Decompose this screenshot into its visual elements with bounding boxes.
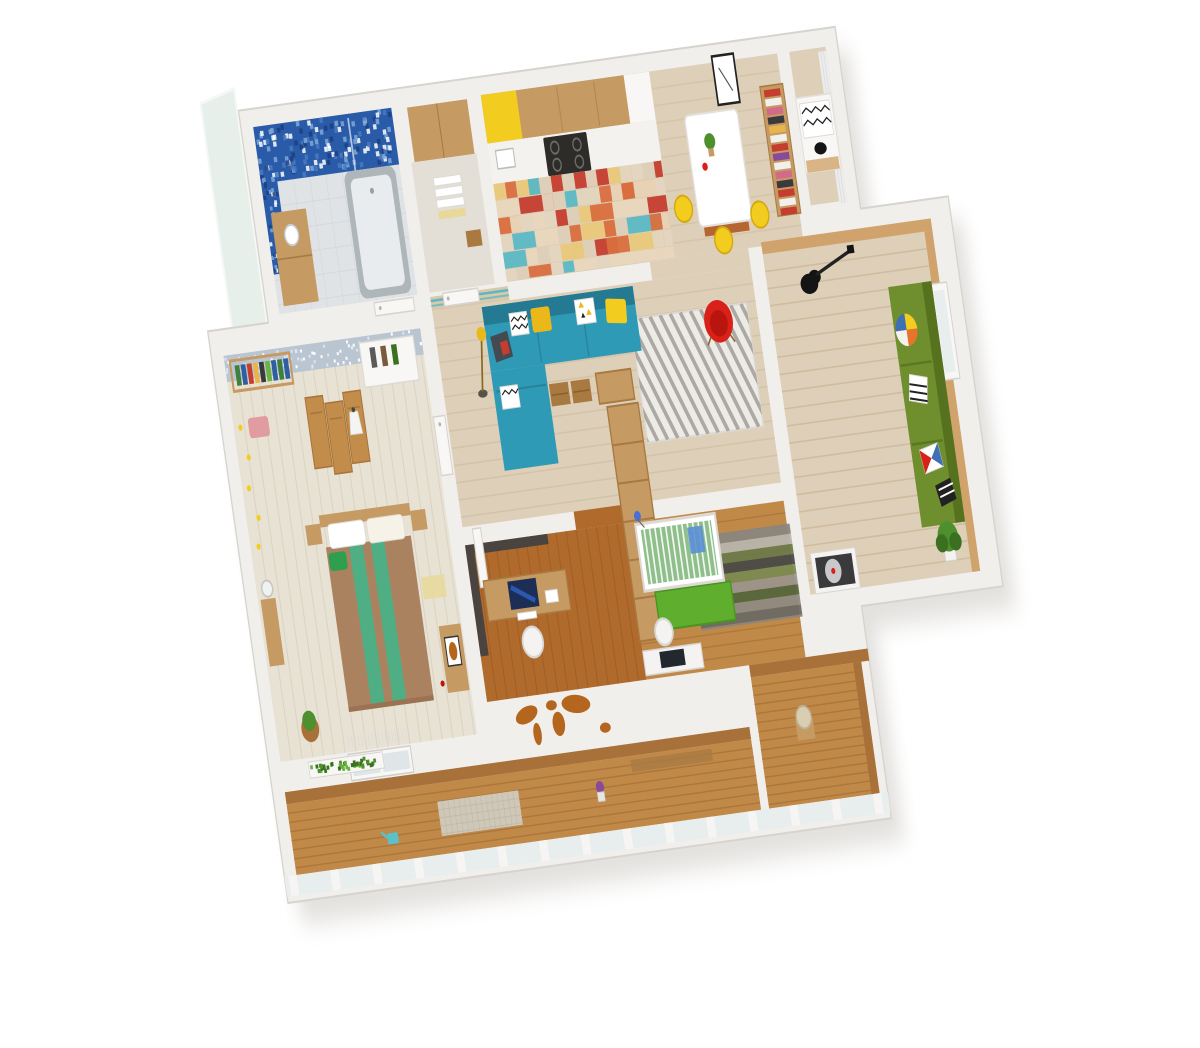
- texture-speckle: [334, 151, 338, 157]
- coffee-table: [595, 369, 634, 404]
- texture-speckle: [313, 360, 315, 363]
- guitar-head: [847, 245, 855, 254]
- texture-speckle: [295, 350, 297, 353]
- texture-speckle: [329, 136, 333, 142]
- texture-speckle: [264, 184, 267, 188]
- texture-patch: [610, 184, 623, 202]
- texture-speckle: [286, 160, 290, 166]
- texture-speckle: [362, 120, 366, 126]
- texture-speckle: [224, 358, 226, 361]
- texture-speckle: [366, 760, 369, 764]
- texture-speckle: [362, 757, 365, 761]
- pillow-zigzag: [500, 385, 521, 410]
- texture-speckle: [314, 139, 318, 145]
- texture-speckle: [271, 135, 275, 141]
- texture-speckle: [306, 166, 310, 172]
- texture-speckle: [356, 146, 360, 152]
- pillow-zigzag: [509, 311, 530, 336]
- texture-speckle: [277, 127, 281, 133]
- texture-speckle: [303, 357, 305, 360]
- texture-patch: [572, 242, 585, 260]
- texture-speckle: [339, 350, 341, 353]
- texture-speckle: [351, 121, 355, 127]
- texture-speckle: [226, 368, 228, 371]
- texture-speckle: [299, 128, 303, 134]
- texture-speckle: [337, 127, 341, 133]
- texture-speckle: [273, 157, 277, 163]
- texture-patch: [604, 220, 617, 238]
- texture-speckle: [309, 131, 313, 137]
- bed-pillow: [327, 520, 367, 549]
- texture-speckle: [296, 121, 300, 127]
- texture-speckle: [320, 764, 323, 768]
- texture-patch: [503, 250, 527, 269]
- texture-patch: [606, 235, 630, 254]
- floorplan-svg: [0, 0, 1200, 1048]
- texture-speckle: [375, 119, 379, 125]
- texture-speckle: [269, 165, 273, 171]
- texture-patch: [585, 170, 598, 188]
- texture-speckle: [367, 142, 371, 148]
- texture-speckle: [356, 761, 359, 765]
- texture-speckle: [351, 346, 353, 349]
- texture-speckle: [338, 163, 342, 169]
- texture-speckle: [310, 141, 314, 147]
- texture-speckle: [289, 146, 293, 152]
- apartment-model: [175, 0, 1033, 903]
- texture-speckle: [369, 763, 372, 767]
- texture-speckle: [269, 225, 272, 229]
- texture-speckle: [272, 173, 275, 177]
- kitchen-yellow-cabinet: [481, 90, 523, 143]
- texture-speckle: [282, 162, 286, 168]
- texture-speckle: [323, 345, 325, 348]
- texture-speckle: [358, 358, 360, 361]
- texture-patch: [532, 212, 545, 230]
- texture-speckle: [388, 112, 392, 118]
- texture-speckle: [266, 191, 269, 195]
- texture-speckle: [366, 128, 370, 134]
- texture-speckle: [330, 123, 334, 129]
- texture-speckle: [358, 131, 362, 137]
- closet: [359, 335, 419, 387]
- texture-speckle: [347, 147, 351, 153]
- texture-speckle: [289, 133, 293, 139]
- table-plant-pot: [708, 148, 715, 157]
- texture-patch: [569, 224, 582, 242]
- papers: [545, 589, 559, 603]
- texture-speckle: [375, 112, 379, 118]
- texture-patch: [647, 195, 668, 214]
- texture-speckle: [386, 137, 390, 143]
- balcony-door-glass: [381, 750, 410, 772]
- side-table: [410, 509, 428, 531]
- texture-patch: [563, 260, 575, 273]
- texture-speckle: [377, 139, 381, 145]
- texture-speckle: [344, 157, 348, 163]
- texture-speckle: [377, 160, 381, 166]
- pink-seat: [247, 416, 270, 439]
- texture-speckle: [284, 356, 286, 359]
- texture-speckle: [344, 761, 347, 765]
- texture-speckle: [373, 124, 377, 130]
- texture-speckle: [308, 355, 310, 358]
- texture-speckle: [311, 351, 313, 354]
- texture-patch: [505, 268, 517, 281]
- texture-speckle: [382, 110, 386, 116]
- texture-speckle: [274, 265, 277, 269]
- texture-speckle: [327, 160, 331, 166]
- texture-speckle: [259, 142, 263, 148]
- texture-patch: [493, 183, 506, 201]
- texture-speckle: [359, 162, 363, 168]
- texture-speckle: [382, 154, 386, 160]
- pillow-triangles: [574, 298, 596, 325]
- texture-speckle: [280, 124, 284, 130]
- texture-speckle: [342, 767, 345, 771]
- texture-speckle: [290, 350, 292, 353]
- texture-speckle: [260, 131, 264, 137]
- texture-speckle: [340, 121, 344, 127]
- texture-speckle: [313, 352, 315, 355]
- texture-speckle: [337, 362, 339, 365]
- texture-patch: [546, 228, 559, 246]
- texture-speckle: [327, 353, 329, 356]
- texture-speckle: [408, 330, 410, 333]
- render-stage: [0, 0, 1200, 1048]
- texture-patch: [512, 231, 536, 250]
- texture-speckle: [271, 188, 274, 192]
- texture-speckle: [310, 765, 313, 769]
- texture-speckle: [345, 357, 347, 360]
- texture-speckle: [315, 764, 318, 768]
- texture-speckle: [317, 769, 320, 773]
- texture-speckle: [316, 143, 320, 149]
- texture-patch: [505, 181, 518, 199]
- texture-speckle: [303, 159, 307, 165]
- texture-speckle: [326, 765, 329, 769]
- texture-speckle: [275, 192, 278, 196]
- texture-speckle: [258, 158, 262, 164]
- kitchen-sink: [495, 148, 515, 169]
- texture-patch: [631, 163, 644, 181]
- texture-patch: [528, 178, 541, 196]
- texture-speckle: [319, 163, 323, 169]
- texture-speckle: [330, 762, 333, 766]
- texture-speckle: [360, 759, 363, 763]
- texture-speckle: [349, 362, 351, 365]
- texture-speckle: [310, 166, 314, 172]
- texture-speckle: [272, 192, 275, 196]
- texture-speckle: [304, 154, 308, 160]
- texture-patch: [619, 165, 632, 183]
- texture-patch: [550, 174, 563, 192]
- texture-speckle: [322, 159, 326, 165]
- texture-speckle: [387, 127, 391, 133]
- texture-patch: [541, 193, 554, 211]
- texture-speckle: [314, 166, 318, 172]
- texture-speckle: [307, 120, 311, 126]
- texture-speckle: [346, 340, 348, 343]
- desk-screen: [659, 649, 686, 669]
- bed-pillow: [366, 514, 406, 543]
- closet-body: [359, 335, 419, 387]
- texture-speckle: [361, 765, 364, 769]
- texture-speckle: [283, 135, 287, 141]
- texture-speckle: [376, 151, 380, 157]
- texture-speckle: [367, 337, 369, 340]
- texture-patch: [652, 230, 665, 248]
- texture-speckle: [337, 352, 339, 355]
- storage-box: [466, 229, 483, 247]
- texture-speckle: [354, 135, 358, 141]
- texture-speckle: [265, 165, 269, 171]
- texture-speckle: [290, 156, 294, 162]
- texture-speckle: [265, 139, 269, 145]
- texture-speckle: [280, 171, 284, 177]
- green-pillow: [328, 551, 348, 572]
- texture-speckle: [269, 242, 272, 246]
- texture-speckle: [303, 138, 307, 144]
- texture-speckle: [271, 177, 275, 183]
- texture-speckle: [314, 160, 318, 166]
- texture-speckle: [270, 206, 273, 210]
- texture-speckle: [326, 363, 328, 366]
- texture-speckle: [286, 355, 288, 358]
- gas-stove: [543, 132, 591, 176]
- texture-speckle: [315, 153, 319, 159]
- texture-speckle: [273, 253, 276, 257]
- texture-speckle: [356, 349, 358, 352]
- texture-patch: [526, 248, 539, 266]
- texture-speckle: [267, 146, 271, 152]
- texture-speckle: [302, 172, 306, 178]
- texture-speckle: [344, 151, 348, 157]
- texture-speckle: [347, 767, 350, 771]
- texture-patch: [666, 246, 675, 258]
- texture-speckle: [259, 170, 263, 176]
- texture-speckle: [300, 349, 302, 352]
- texture-speckle: [353, 762, 356, 766]
- texture-speckle: [348, 344, 350, 347]
- texture-speckle: [273, 141, 277, 147]
- texture-speckle: [333, 359, 335, 362]
- record-player: [810, 547, 860, 594]
- watering-can: [387, 832, 399, 845]
- texture-speckle: [294, 140, 298, 146]
- texture-speckle: [327, 153, 331, 159]
- texture-speckle: [299, 144, 303, 150]
- flower-pot: [597, 792, 605, 802]
- texture-speckle: [270, 128, 274, 134]
- texture-speckle: [334, 121, 338, 127]
- texture-speckle: [320, 355, 322, 358]
- texture-speckle: [363, 148, 367, 154]
- texture-speckle: [293, 166, 297, 172]
- pillow-yellow: [605, 299, 627, 324]
- texture-speckle: [274, 200, 277, 204]
- texture-speckle: [338, 766, 341, 770]
- texture-speckle: [388, 158, 392, 164]
- texture-speckle: [314, 127, 318, 133]
- texture-patch: [590, 202, 614, 221]
- texture-speckle: [343, 137, 347, 143]
- side-table: [305, 524, 323, 546]
- texture-speckle: [373, 758, 376, 762]
- texture-speckle: [226, 371, 228, 374]
- texture-speckle: [313, 134, 317, 140]
- bedside-mat: [421, 574, 447, 599]
- texture-speckle: [270, 228, 273, 232]
- pillow-yellow: [530, 306, 552, 333]
- texture-speckle: [324, 125, 328, 131]
- texture-speckle: [311, 364, 313, 367]
- texture-speckle: [324, 147, 328, 153]
- texture-speckle: [388, 145, 392, 151]
- texture-speckle: [342, 361, 344, 364]
- texture-patch: [555, 209, 568, 227]
- texture-speckle: [402, 332, 404, 335]
- texture-speckle: [343, 165, 347, 171]
- texture-speckle: [300, 358, 302, 361]
- texture-patch: [496, 198, 520, 217]
- texture-speckle: [327, 146, 331, 152]
- texture-speckle: [297, 357, 299, 360]
- texture-speckle: [263, 196, 266, 200]
- texture-speckle: [339, 153, 343, 159]
- texture-speckle: [391, 332, 393, 335]
- texture-speckle: [420, 342, 422, 345]
- texture-speckle: [295, 365, 297, 368]
- texture-speckle: [320, 129, 324, 135]
- texture-speckle: [319, 118, 323, 124]
